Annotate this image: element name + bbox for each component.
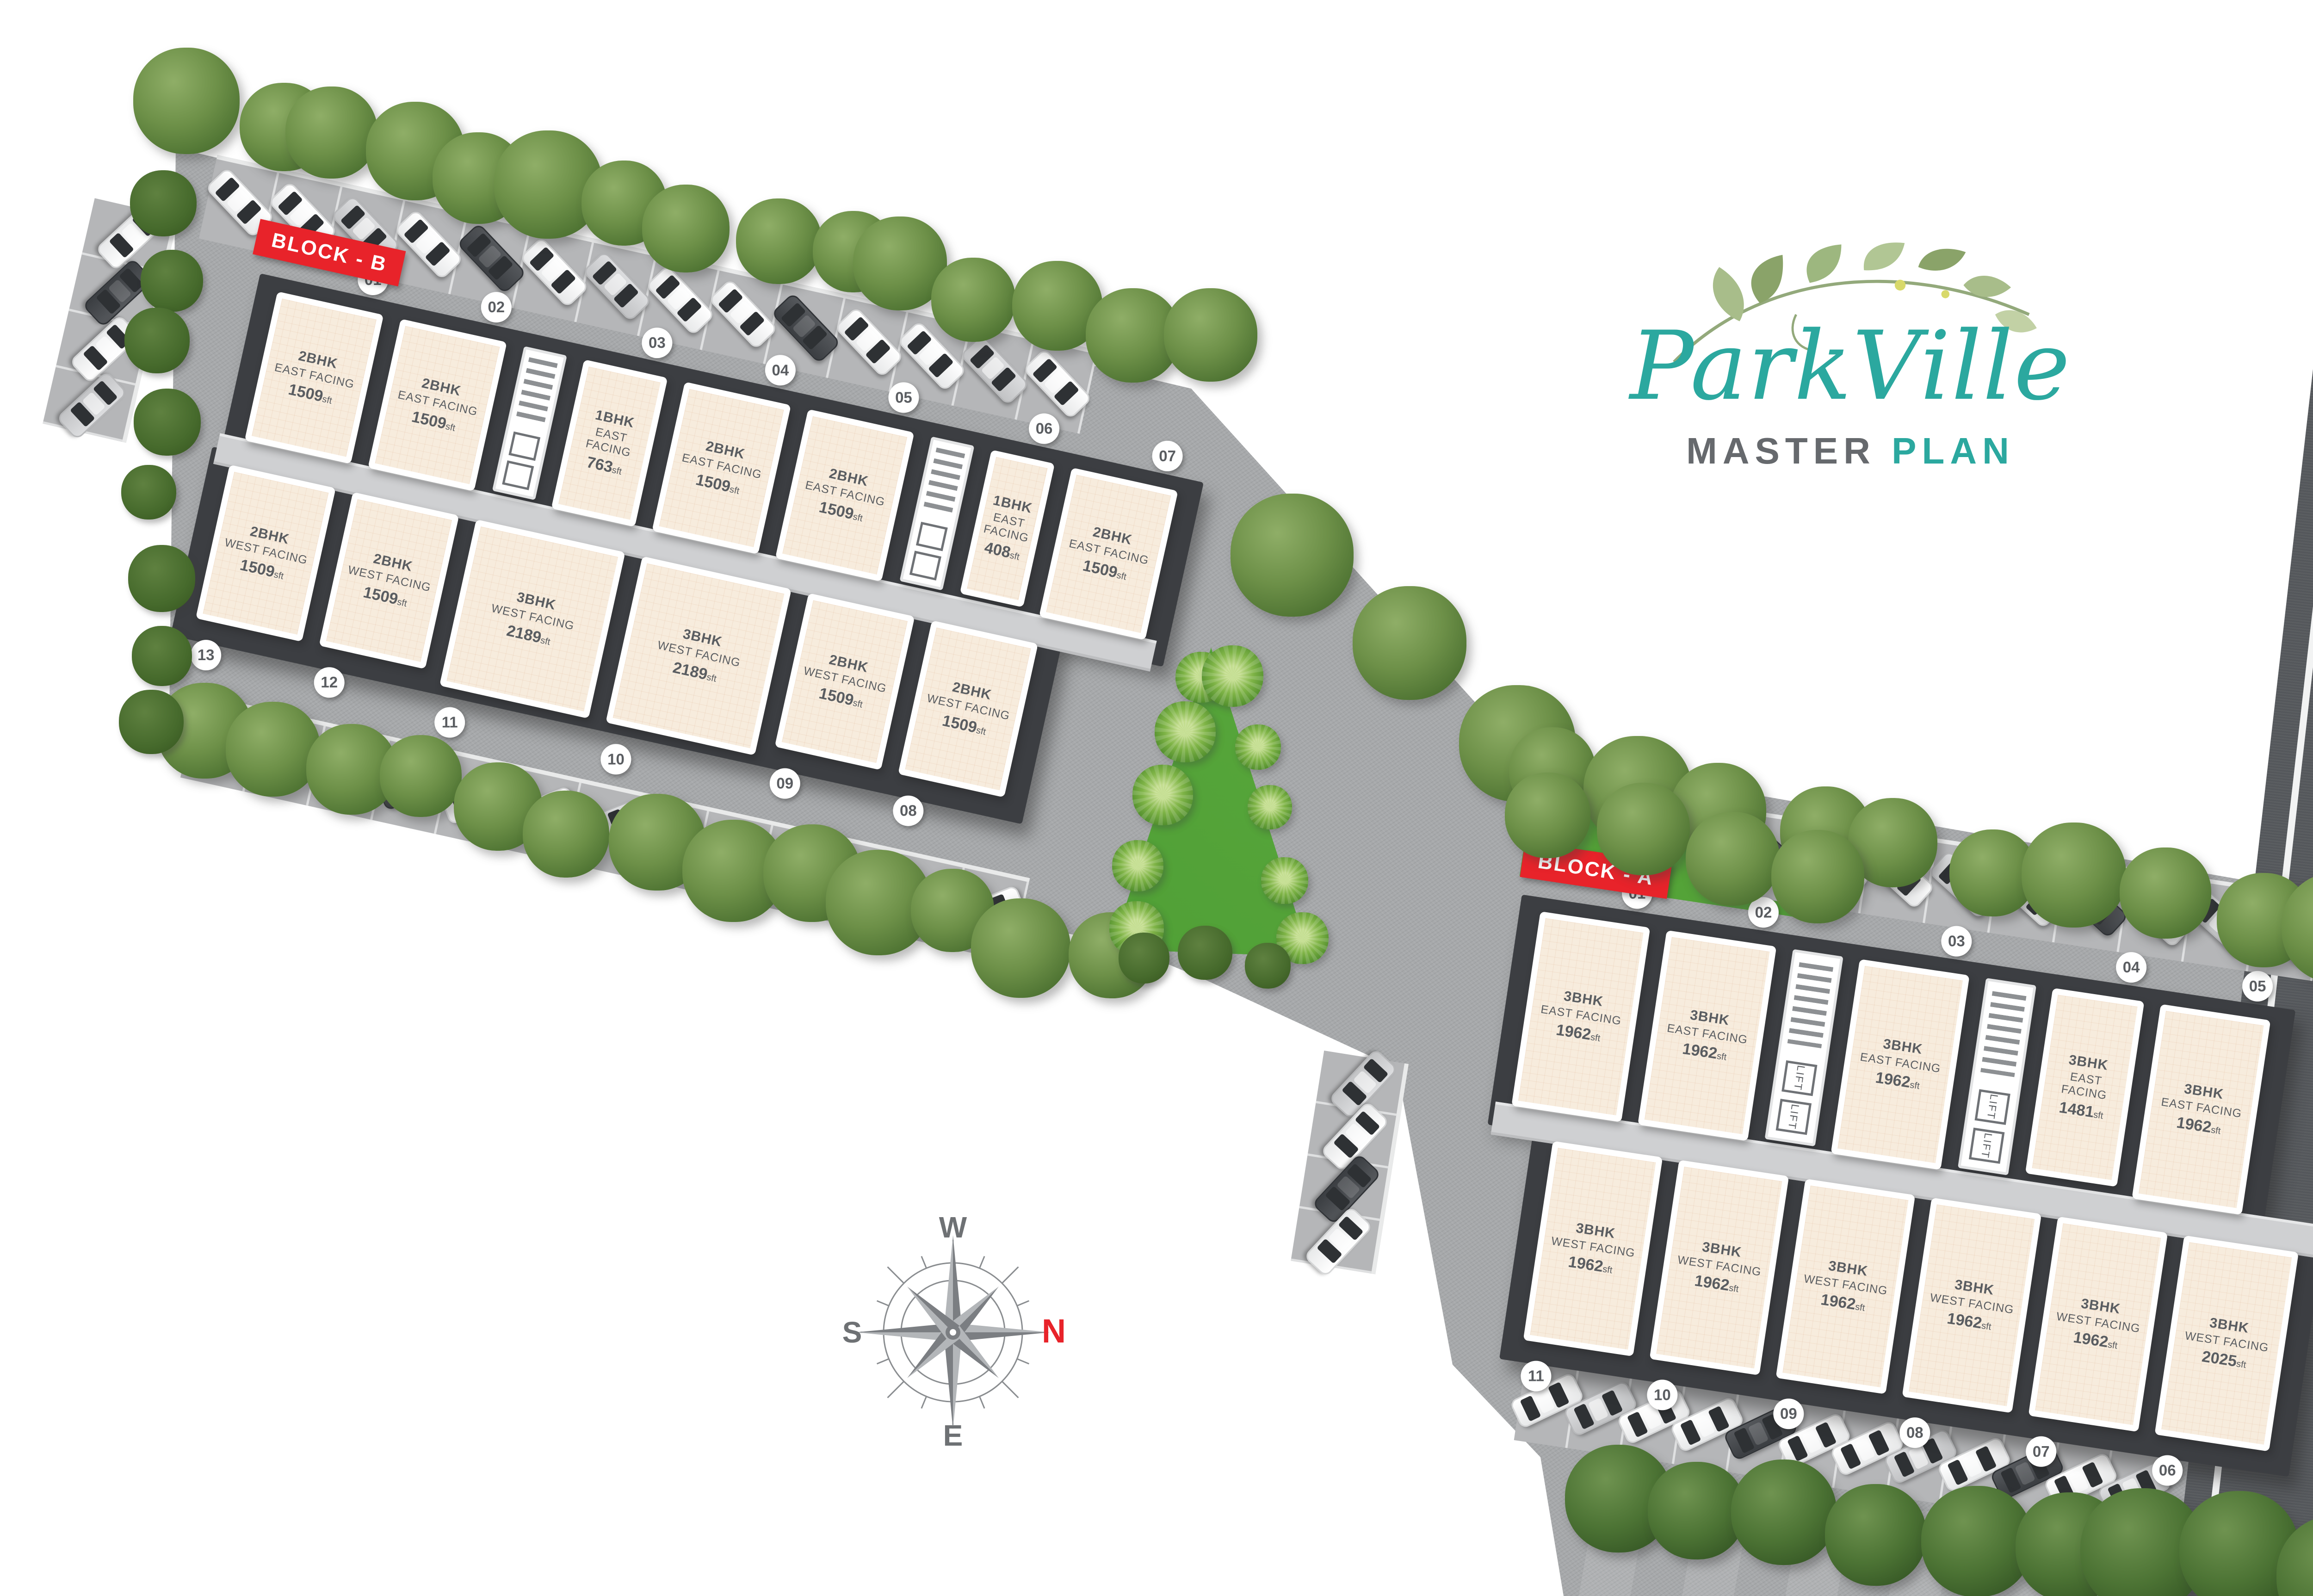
unit-number-badge: 07 xyxy=(1152,441,1183,471)
unit-area-value: 1962 xyxy=(1681,1040,1718,1063)
tree-icon xyxy=(971,898,1070,998)
bush-icon xyxy=(130,170,196,236)
unit-number-badge: 08 xyxy=(1899,1417,1930,1448)
unit-number-badge: 10 xyxy=(600,744,631,774)
tree-icon xyxy=(226,702,320,796)
lift-box: LIFT xyxy=(1775,1099,1812,1135)
bush-icon xyxy=(1245,943,1291,989)
car-icon xyxy=(708,278,778,350)
unit-area-unit: sft xyxy=(705,672,717,684)
tree-icon xyxy=(523,791,610,878)
unit-number-badge: 02 xyxy=(481,292,512,322)
tree-icon xyxy=(1231,494,1354,617)
car-icon xyxy=(771,292,841,364)
unit-area-unit: sft xyxy=(1855,1302,1866,1313)
unit-area: 1962sft xyxy=(1567,1253,1614,1278)
unit-area-unit: sft xyxy=(1590,1032,1601,1044)
unit-area-value: 1509 xyxy=(817,498,855,523)
bush-icon xyxy=(134,389,201,456)
unit-area-value: 1509 xyxy=(694,471,732,495)
palm-icon xyxy=(1248,785,1292,829)
tree-icon xyxy=(931,258,1015,342)
parking-strip xyxy=(1291,1051,1409,1274)
unit-number-badge: 09 xyxy=(1773,1398,1804,1429)
unit-area-unit: sft xyxy=(396,597,408,609)
unit-area-value: 2189 xyxy=(671,659,709,683)
unit-area-unit: sft xyxy=(1116,570,1127,582)
unit-area-unit: sft xyxy=(1981,1321,1992,1332)
unit-area: 1962sft xyxy=(1946,1310,1992,1334)
unit-area: 1962sft xyxy=(1681,1040,1728,1064)
unit-area-unit: sft xyxy=(852,698,863,710)
bush-icon xyxy=(124,308,190,373)
unit-area-unit: sft xyxy=(2107,1340,2118,1351)
bush-icon xyxy=(132,626,192,686)
unit-area-unit: sft xyxy=(852,512,864,524)
unit-area-value: 2025 xyxy=(2201,1348,2238,1371)
palm-icon xyxy=(1155,701,1216,762)
compass-east: E xyxy=(943,1419,963,1452)
unit-number-badge: 04 xyxy=(2116,952,2146,983)
unit-area-unit: sft xyxy=(445,421,456,433)
bush-icon xyxy=(121,465,176,520)
palm-icon xyxy=(1202,645,1263,707)
unit-area-unit: sft xyxy=(1602,1264,1613,1276)
dtree-icon xyxy=(1731,1460,1837,1565)
unit-area-value: 1962 xyxy=(2072,1329,2109,1351)
unit-area-unit: sft xyxy=(729,484,740,496)
car-icon xyxy=(582,251,652,322)
lift-box: LIFT xyxy=(1969,1128,2005,1164)
unit-area: 1481sft xyxy=(2058,1098,2104,1123)
palm-icon xyxy=(1261,857,1308,904)
unit-number-badge: 03 xyxy=(642,328,672,358)
lift-label: LIFT xyxy=(1791,1064,1807,1092)
unit-area: 2025sft xyxy=(2201,1348,2247,1373)
unit-area-value: 763 xyxy=(585,453,614,476)
unit-area-unit: sft xyxy=(539,635,551,647)
unit-facing: EAST FACING xyxy=(571,421,649,463)
unit-area-value: 1962 xyxy=(2175,1114,2212,1137)
lift-box xyxy=(509,431,540,461)
unit-area: 1962sft xyxy=(2072,1329,2119,1353)
unit-area-unit: sft xyxy=(611,465,623,477)
unit-area-value: 1962 xyxy=(1819,1291,1856,1313)
lift-box xyxy=(916,522,947,551)
compass-south: S xyxy=(842,1316,862,1349)
unit-number-badge: 10 xyxy=(1647,1379,1677,1410)
logo-group: ParkVille MASTER PLAN xyxy=(1573,250,2128,472)
lift-box: LIFT xyxy=(1974,1089,2010,1125)
car-icon xyxy=(394,209,464,280)
tree-icon xyxy=(2120,847,2211,939)
unit-number-badge: 05 xyxy=(888,382,919,413)
stairs-icon xyxy=(923,448,965,515)
unit-area: 763sft xyxy=(585,453,624,479)
tree-icon xyxy=(1597,783,1689,875)
unit-area-value: 1509 xyxy=(362,583,400,608)
unit-area-value: 2189 xyxy=(505,622,543,646)
car-icon xyxy=(645,265,715,336)
car-icon xyxy=(960,334,1030,406)
car-icon xyxy=(1023,348,1093,420)
plan-label: PLAN xyxy=(1892,430,2015,471)
lift-box: LIFT xyxy=(1781,1060,1818,1096)
tree-icon xyxy=(1353,586,1466,700)
stairs-icon xyxy=(1980,991,2027,1077)
unit-area-value: 1962 xyxy=(1555,1021,1592,1044)
unit-area-unit: sft xyxy=(2210,1125,2221,1137)
unit-number-badge: 08 xyxy=(893,796,923,826)
unit-area-value: 1509 xyxy=(410,408,448,433)
tree-icon xyxy=(736,198,822,284)
palm-icon xyxy=(1235,724,1280,770)
unit-area-value: 1962 xyxy=(1946,1310,1983,1332)
lift-box xyxy=(502,461,534,490)
unit-number-badge: 12 xyxy=(314,667,345,698)
lift-label: LIFT xyxy=(1985,1094,2001,1121)
unit-number-badge: 07 xyxy=(2026,1436,2056,1467)
stairs-icon xyxy=(1787,962,1833,1048)
project-logo-text: ParkVille xyxy=(1573,319,2128,414)
tree-icon xyxy=(285,87,377,179)
unit-area: 408sft xyxy=(983,539,1021,564)
bush-icon xyxy=(141,250,203,312)
unit-number-badge: 09 xyxy=(770,768,800,799)
dtree-icon xyxy=(1825,1484,1926,1585)
bush-icon xyxy=(1119,933,1169,984)
compass-rose-icon: W N S E xyxy=(833,1212,1073,1453)
unit-area: 1962sft xyxy=(1819,1291,1866,1315)
bush-icon xyxy=(1178,926,1232,980)
unit-area-value: 1962 xyxy=(1874,1069,1911,1092)
unit-number-badge: 05 xyxy=(2242,971,2273,1002)
unit-area-value: 1962 xyxy=(1567,1253,1604,1276)
bush-icon xyxy=(119,690,183,754)
unit-area-value: 408 xyxy=(983,539,1012,562)
unit-number-badge: 06 xyxy=(1029,414,1059,444)
bush-icon xyxy=(128,545,195,612)
unit-area: 1962sft xyxy=(1693,1272,1740,1297)
compass-north: N xyxy=(1042,1313,1066,1350)
tree-icon xyxy=(642,185,730,272)
tree-icon xyxy=(1505,773,1590,858)
unit-area-unit: sft xyxy=(1909,1080,1920,1092)
tree-icon xyxy=(1164,288,1257,382)
unit-area-unit: sft xyxy=(2093,1109,2104,1121)
unit-area-value: 1509 xyxy=(1081,557,1119,581)
car-icon xyxy=(834,306,904,377)
unit-area-value: 1509 xyxy=(287,381,325,405)
stairs-icon xyxy=(516,358,558,425)
unit-area-value: 1509 xyxy=(940,711,978,736)
unit-area-unit: sft xyxy=(2236,1359,2247,1371)
unit-area-unit: sft xyxy=(321,394,333,406)
unit-area-value: 1509 xyxy=(238,556,276,581)
unit-facing: EAST FACING xyxy=(2043,1067,2127,1105)
car-icon xyxy=(519,237,589,308)
palm-icon xyxy=(1112,840,1164,892)
unit-area-value: 1481 xyxy=(2058,1098,2095,1121)
unit-area-value: 1962 xyxy=(1693,1272,1730,1295)
tree-icon xyxy=(2022,823,2126,927)
unit-area: 1962sft xyxy=(2175,1114,2222,1138)
unit-area-unit: sft xyxy=(975,725,987,737)
tree-icon xyxy=(1686,812,1780,906)
master-plan-title: MASTER PLAN xyxy=(1573,430,2128,472)
unit-area-unit: sft xyxy=(1728,1283,1739,1295)
unit-area: 1962sft xyxy=(1874,1069,1921,1094)
tree-icon xyxy=(133,48,240,154)
unit-number-badge: 04 xyxy=(765,355,796,385)
tree-icon xyxy=(1771,830,1865,923)
unit-area-unit: sft xyxy=(1008,551,1020,563)
unit-area: 1962sft xyxy=(1555,1021,1602,1045)
lift-label: LIFT xyxy=(1786,1103,1802,1131)
car-icon xyxy=(457,223,526,294)
master-plan-canvas: 100' WIDE ROAD EXIT ENTRY ParkVille MAST… xyxy=(0,0,2313,1596)
unit-number-badge: 13 xyxy=(191,640,221,670)
unit-area-unit: sft xyxy=(1716,1051,1727,1063)
unit-number-badge: 11 xyxy=(1521,1361,1551,1392)
tree-icon xyxy=(380,735,462,817)
compass-group: W N S E xyxy=(833,1212,1073,1453)
unit-number-badge: 11 xyxy=(434,707,465,738)
palm-icon xyxy=(1132,765,1193,825)
compass-west: W xyxy=(939,1212,967,1244)
lift-box xyxy=(909,551,941,581)
master-label: MASTER xyxy=(1686,430,1876,471)
unit-area-value: 1509 xyxy=(817,684,855,709)
unit-number-badge: 03 xyxy=(1941,926,1972,957)
unit-area-unit: sft xyxy=(273,569,284,581)
lift-label: LIFT xyxy=(1979,1132,1995,1159)
unit-number-badge: 06 xyxy=(2152,1455,2183,1486)
